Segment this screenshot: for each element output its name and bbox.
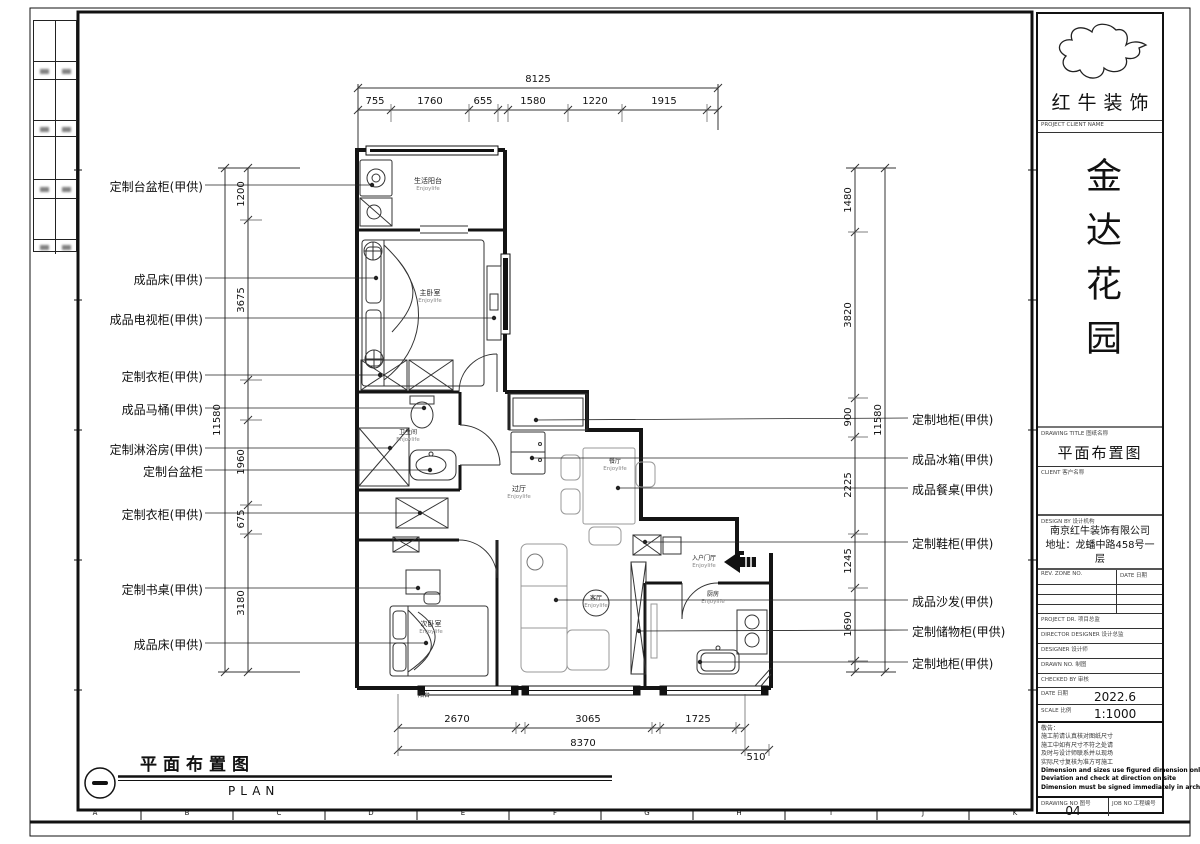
dim-bottom-seg: 1725 — [676, 714, 720, 725]
date-row: DATE 日期 2022.6 — [1038, 687, 1162, 704]
bull-logo-icon — [1038, 18, 1166, 88]
callout-label: 定制衣柜(甲供) — [68, 506, 203, 523]
watermark: Enjoylife — [585, 466, 645, 473]
callout-label: 成品电视柜(甲供) — [68, 311, 203, 328]
dim-top-seg: 1580 — [511, 96, 555, 107]
company-info: 南京红牛装饰有限公司 地址：龙蟠中路458号一层 — [1038, 525, 1162, 567]
watermark: Enjoylife — [566, 603, 626, 610]
dim-top-total: 8125 — [516, 74, 560, 85]
design-by-row: DESIGN BY 设计机构 南京红牛装饰有限公司 地址：龙蟠中路458号一层 — [1038, 514, 1162, 568]
room-label: 阳台 — [394, 692, 454, 700]
drawing-sheet: 8125 755 1760 655 1580 1220 1915 11580 1… — [0, 0, 1200, 844]
callout-label: 定制地柜(甲供) — [912, 411, 993, 428]
room-label: 过厅Enjoylife — [489, 485, 549, 501]
dim-bottom-total: 8370 — [561, 738, 605, 749]
revision-header-row: REV. ZONE NO. DATE 日期 — [1038, 568, 1162, 584]
notes-area: 敬告： 施工前请认真核对图纸尺寸 施工中如有尺寸不符之处请 及时与设计师联系并以… — [1038, 721, 1162, 796]
dim-right-seg: 3820 — [842, 285, 854, 345]
revision-cell — [34, 199, 76, 240]
drawing-no-value: 04 — [1038, 804, 1108, 818]
grid-letter: C — [269, 809, 289, 817]
dim-left-seg: 1200 — [235, 164, 247, 224]
revision-cell — [34, 80, 76, 121]
grid-letter: J — [913, 809, 933, 817]
scale-row: SCALE 比例 1:1000 — [1038, 704, 1162, 721]
callout-label: 定制储物柜(甲供) — [912, 623, 1005, 640]
dim-top-seg: 1220 — [573, 96, 617, 107]
revision-strip — [33, 20, 77, 252]
dim-left-total: 11580 — [211, 390, 223, 450]
logo-sub-row: PROJECT CLIENT NAME — [1038, 120, 1162, 132]
director-designer-row: DIRECTOR DESIGNER 设计总监 — [1038, 628, 1162, 643]
watermark: Enjoylife — [489, 494, 549, 501]
callout-label: 成品冰箱(甲供) — [912, 451, 993, 468]
watermark: Enjoylife — [401, 629, 461, 636]
grid-letter: G — [637, 809, 657, 817]
callout-label: 定制台盆柜 — [68, 463, 203, 480]
callout-label: 定制地柜(甲供) — [912, 655, 993, 672]
watermark: Enjoylife — [378, 437, 438, 444]
revision-empty-row — [1038, 604, 1162, 613]
grid-letter: I — [821, 809, 841, 817]
dim-left-seg: 3675 — [235, 270, 247, 330]
dim-top-seg: 655 — [461, 96, 505, 107]
grid-letter: F — [545, 809, 565, 817]
grid-letter: B — [177, 809, 197, 817]
callout-label: 定制台盆柜(甲供) — [68, 178, 203, 195]
room-label: 次卧室Enjoylife — [401, 620, 461, 636]
watermark: Enjoylife — [683, 599, 743, 606]
revision-cell — [34, 121, 76, 137]
callout-label: 成品床(甲供) — [68, 271, 203, 288]
dim-right-seg: 900 — [842, 387, 854, 447]
dim-right-total: 11580 — [872, 390, 884, 450]
room-label: 客厅Enjoylife — [566, 595, 626, 609]
callout-label: 定制衣柜(甲供) — [68, 368, 203, 385]
dim-left-seg: 3180 — [235, 573, 247, 633]
grid-letter: D — [361, 809, 381, 817]
hall-wardrobe — [393, 498, 448, 552]
room-label: 主卧室Enjoylife — [400, 289, 460, 305]
revision-cell — [34, 21, 76, 62]
desk — [406, 570, 440, 604]
revision-cell — [34, 62, 76, 80]
dim-bottom-seg: 3065 — [566, 714, 610, 725]
drawing-title-row: DRAWING TITLE 图纸名称 平面布置图 — [1038, 426, 1162, 466]
dim-right-seg: 1245 — [842, 531, 854, 591]
room-label: 生活阳台Enjoylife — [398, 177, 458, 193]
callout-label: 成品床(甲供) — [68, 636, 203, 653]
revision-cell — [34, 240, 76, 254]
project-name-area: 金达花园 — [1038, 132, 1162, 426]
revision-cell — [34, 137, 76, 180]
project-name: 金达花园 — [1082, 157, 1118, 373]
room-label: 入户门厅Enjoylife — [674, 555, 734, 569]
fridge-and-counter — [509, 394, 587, 474]
callout-label: 成品餐桌(甲供) — [912, 481, 993, 498]
dim-bottom-extra: 510 — [742, 752, 770, 763]
dim-right-seg: 1690 — [842, 594, 854, 654]
tv-cabinet — [487, 266, 501, 340]
watermark: Enjoylife — [398, 186, 458, 193]
room-label: 卫生间Enjoylife — [378, 429, 438, 443]
revision-empty-row — [1038, 594, 1162, 604]
date-value: 2022.6 — [1094, 690, 1136, 704]
dim-right-seg: 2225 — [842, 455, 854, 515]
dim-top-seg: 1915 — [642, 96, 686, 107]
callout-label: 定制书桌(甲供) — [68, 581, 203, 598]
plan-title: 平面布置图 — [140, 750, 255, 775]
master-bed — [362, 240, 484, 386]
callout-label: 定制淋浴房(甲供) — [68, 441, 203, 458]
dim-bottom-seg: 2670 — [435, 714, 479, 725]
logo-area: 红牛装饰 — [1038, 14, 1162, 120]
balcony-washer — [360, 160, 392, 226]
dim-right-seg: 1480 — [842, 170, 854, 230]
project-director-row: PROJECT DR. 项目总监 — [1038, 613, 1162, 628]
logo-name: 红牛装饰 — [1038, 88, 1162, 115]
watermark: Enjoylife — [400, 298, 460, 305]
designer-row: DESIGNER 设计师 — [1038, 643, 1162, 658]
grid-letter: H — [729, 809, 749, 817]
grid-letter: A — [85, 809, 105, 817]
plan-subtitle: PLAN — [228, 784, 279, 798]
callout-label: 成品马桶(甲供) — [68, 401, 203, 418]
sheet-borders — [30, 8, 1190, 836]
leader-lines — [205, 183, 908, 664]
second-bed — [390, 606, 488, 676]
grid-letter: K — [1005, 809, 1025, 817]
watermark: Enjoylife — [674, 563, 734, 570]
checked-row: CHECKED BY 审核 — [1038, 673, 1162, 687]
shoe-cabinet — [633, 535, 681, 555]
grid-letter: E — [453, 809, 473, 817]
callout-label: 成品沙发(甲供) — [912, 593, 993, 610]
dim-top-seg: 755 — [353, 96, 397, 107]
kitchen-fixtures — [697, 610, 771, 686]
drawing-title: 平面布置图 — [1038, 442, 1162, 463]
dim-left-seg: 1960 — [235, 432, 247, 492]
vent-symbols — [364, 242, 383, 368]
room-label: 餐厅Enjoylife — [585, 458, 645, 472]
callout-label: 定制鞋柜(甲供) — [912, 535, 993, 552]
scale-value: 1:1000 — [1094, 707, 1136, 721]
drawing-no-row: DRAWING NO 图号 JOB NO 工程编号 04 — [1038, 796, 1162, 814]
drawn-row: DRAWN NO. 制图 — [1038, 658, 1162, 673]
client-row: CLIENT 客户名称 — [1038, 466, 1162, 514]
dim-top-seg: 1760 — [408, 96, 452, 107]
room-label: 厨房Enjoylife — [683, 591, 743, 605]
revision-empty-row — [1038, 584, 1162, 594]
title-block: 红牛装饰 PROJECT CLIENT NAME 金达花园 DRAWING TI… — [1036, 12, 1164, 814]
dim-left-seg: 675 — [235, 489, 247, 549]
